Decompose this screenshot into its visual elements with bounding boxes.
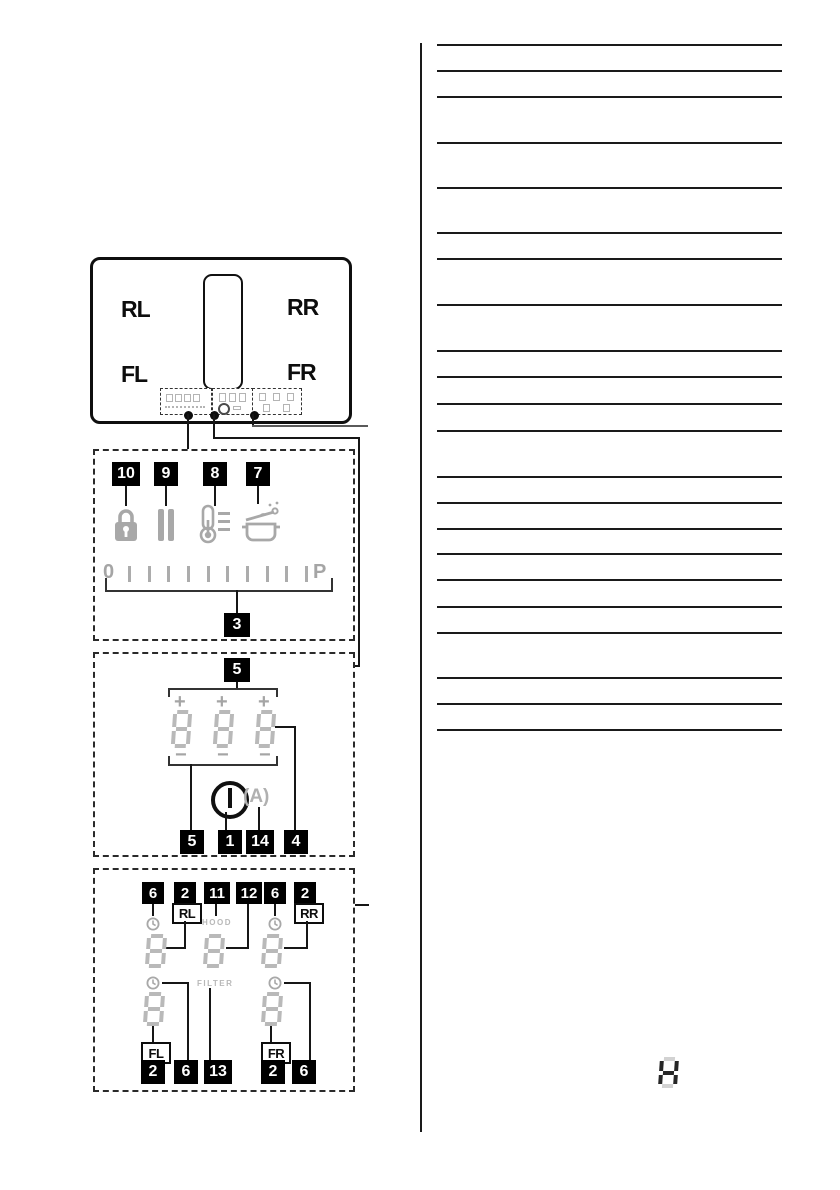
seven-seg-digit xyxy=(203,934,225,968)
ruled-line xyxy=(437,258,782,260)
ruled-line xyxy=(437,232,782,234)
plus-bracket-end xyxy=(168,688,170,697)
plus-bracket-end xyxy=(276,688,278,697)
seven-seg-digit xyxy=(261,992,283,1026)
leader-line xyxy=(190,764,192,830)
seven-seg-digit xyxy=(145,934,167,968)
ruled-line xyxy=(437,476,782,478)
mini-panel-timers xyxy=(252,388,302,415)
tag-7: 7 xyxy=(246,462,270,486)
leader-line xyxy=(274,904,276,916)
tag-13: 13 xyxy=(204,1060,232,1084)
tag-2: 2 xyxy=(261,1060,285,1084)
leader-line xyxy=(213,414,215,439)
leader-line xyxy=(214,486,216,506)
leader-line xyxy=(247,904,249,949)
zone-key-rr: RR xyxy=(294,903,324,924)
ruled-line xyxy=(437,703,782,705)
leader-line xyxy=(309,982,311,1060)
tag-11: 11 xyxy=(204,882,230,904)
leader-line xyxy=(270,1026,272,1042)
slider-tick xyxy=(128,566,131,582)
slider-tick xyxy=(167,566,170,582)
leader-line xyxy=(258,807,260,830)
ruled-line xyxy=(437,96,782,98)
ruled-line xyxy=(437,553,782,555)
column-divider xyxy=(420,43,422,1132)
tag-8: 8 xyxy=(203,462,227,486)
slider-tick xyxy=(305,566,308,582)
tag-6: 6 xyxy=(264,882,286,904)
timer-clock-icon xyxy=(146,976,160,990)
ruled-line xyxy=(437,502,782,504)
ruled-line xyxy=(437,376,782,378)
leader-line xyxy=(284,982,311,984)
tag-3: 3 xyxy=(224,613,250,637)
leader-line xyxy=(165,486,167,506)
leader-line xyxy=(284,947,308,949)
tag-2: 2 xyxy=(141,1060,165,1084)
tag-5-bottom: 5 xyxy=(180,830,204,854)
minus-bracket-end xyxy=(276,756,278,766)
tag-5-top: 5 xyxy=(224,658,250,682)
ruled-line xyxy=(437,304,782,306)
slider-scale xyxy=(128,565,308,583)
tag-12: 12 xyxy=(236,882,262,904)
slider-tick xyxy=(266,566,269,582)
slider-bracket-end xyxy=(331,578,333,590)
slider-tick xyxy=(207,566,210,582)
slider-tick xyxy=(246,566,249,582)
tag-4: 4 xyxy=(284,830,308,854)
timer-clock-icon xyxy=(146,917,160,931)
leader-line xyxy=(162,982,189,984)
ruled-line xyxy=(437,403,782,405)
zone-label-front-left: FL xyxy=(121,361,147,388)
leader-line xyxy=(252,425,368,427)
seven-seg-digit xyxy=(143,992,165,1026)
ruled-line xyxy=(437,350,782,352)
leader-line xyxy=(236,590,238,613)
slider-bracket xyxy=(105,590,333,592)
seven-seg-digit xyxy=(213,710,235,748)
leader-line xyxy=(213,437,360,439)
leader-line xyxy=(187,414,189,450)
timer-clock-icon xyxy=(268,976,282,990)
slider-tick xyxy=(285,566,288,582)
leader-line xyxy=(215,904,217,916)
leader-line xyxy=(166,947,186,949)
tag-6: 6 xyxy=(142,882,164,904)
leader-line xyxy=(152,1026,154,1042)
leader-line xyxy=(152,904,154,916)
ruled-line xyxy=(437,430,782,432)
slider-bracket-end xyxy=(105,578,107,590)
ruled-line xyxy=(437,606,782,608)
manual-page: RL RR FL FR 10 9 8 7 xyxy=(0,0,840,1190)
leader-line xyxy=(184,921,186,949)
tag-6: 6 xyxy=(174,1060,198,1084)
minus-bracket-end xyxy=(168,756,170,766)
pause-icon xyxy=(155,508,177,542)
leader-line xyxy=(275,726,296,728)
mini-power-icon xyxy=(218,403,230,415)
tag-10: 10 xyxy=(112,462,140,486)
mini-slider-dots xyxy=(165,406,205,408)
seven-seg-digit xyxy=(255,710,277,748)
lock-icon xyxy=(112,505,140,545)
leader-line xyxy=(125,486,127,506)
tag-1: 1 xyxy=(218,830,242,854)
zone-label-rear-left: RL xyxy=(121,296,150,323)
zone-label-front-right: FR xyxy=(287,359,316,386)
ruled-line xyxy=(437,70,782,72)
ruled-line xyxy=(437,729,782,731)
tag-2: 2 xyxy=(294,882,316,904)
thermometer-icon xyxy=(198,504,230,544)
ruled-line xyxy=(437,632,782,634)
hood-label: HOOD xyxy=(202,918,232,927)
timer-clock-icon xyxy=(268,917,282,931)
hood-vent-outline xyxy=(203,274,243,390)
auto-mode-symbol: (A) xyxy=(243,786,269,808)
ruled-line xyxy=(437,44,782,46)
ruled-line xyxy=(437,187,782,189)
seven-seg-digit xyxy=(171,710,193,748)
slider-tick xyxy=(226,566,229,582)
slider-p-label: P xyxy=(313,561,326,584)
ruled-line xyxy=(437,528,782,530)
leader-line xyxy=(225,812,227,830)
zone-key-rl: RL xyxy=(172,903,202,924)
ruled-line xyxy=(437,142,782,144)
seven-seg-digit xyxy=(261,934,283,968)
leader-line xyxy=(294,726,296,830)
tag-6: 6 xyxy=(292,1060,316,1084)
seven-seg-h-indicator xyxy=(658,1057,679,1088)
tag-14: 14 xyxy=(246,830,274,854)
leader-line xyxy=(358,437,360,667)
slider-tick xyxy=(187,566,190,582)
leader-line xyxy=(209,988,211,1060)
tag-2: 2 xyxy=(174,882,196,904)
mini-panel-display xyxy=(212,388,254,415)
leader-line xyxy=(306,921,308,949)
minus-bracket xyxy=(168,764,278,766)
leader-line xyxy=(226,947,249,949)
zone-label-rear-right: RR xyxy=(287,294,318,321)
tag-9: 9 xyxy=(154,462,178,486)
ruled-line xyxy=(437,677,782,679)
ruled-line xyxy=(437,579,782,581)
filter-label: FILTER xyxy=(197,979,233,988)
pot-icon xyxy=(240,500,282,544)
leader-line xyxy=(187,982,189,1060)
slider-tick xyxy=(148,566,151,582)
plus-bracket xyxy=(168,688,278,690)
